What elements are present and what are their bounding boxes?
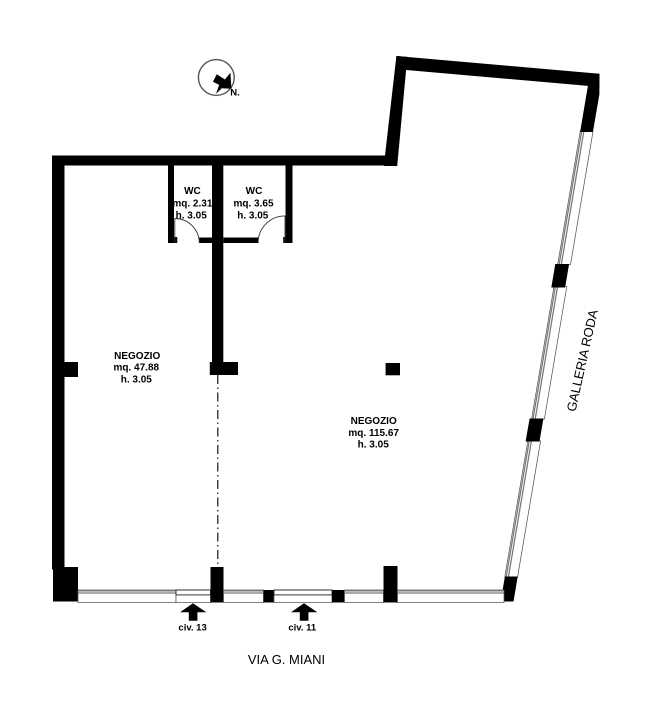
svg-text:mq. 3.65: mq. 3.65: [233, 198, 273, 209]
svg-text:NEGOZIO: NEGOZIO: [351, 416, 397, 427]
svg-text:h. 3.05: h. 3.05: [121, 374, 153, 385]
svg-text:mq. 115.67: mq. 115.67: [348, 428, 399, 439]
svg-text:WC: WC: [246, 186, 263, 197]
svg-text:civ. 11: civ. 11: [288, 622, 317, 633]
svg-text:h. 3.05: h. 3.05: [176, 210, 208, 221]
svg-text:civ. 13: civ. 13: [178, 622, 206, 633]
svg-text:NEGOZIO: NEGOZIO: [114, 351, 160, 362]
svg-text:h. 3.05: h. 3.05: [237, 210, 269, 221]
svg-text:h. 3.05: h. 3.05: [358, 440, 390, 451]
svg-text:WC: WC: [184, 186, 201, 197]
svg-text:N.: N.: [230, 87, 240, 98]
svg-text:mq. 2.31: mq. 2.31: [172, 198, 212, 209]
svg-text:VIA G. MIANI: VIA G. MIANI: [248, 652, 325, 667]
svg-text:mq. 47.88: mq. 47.88: [114, 363, 160, 374]
